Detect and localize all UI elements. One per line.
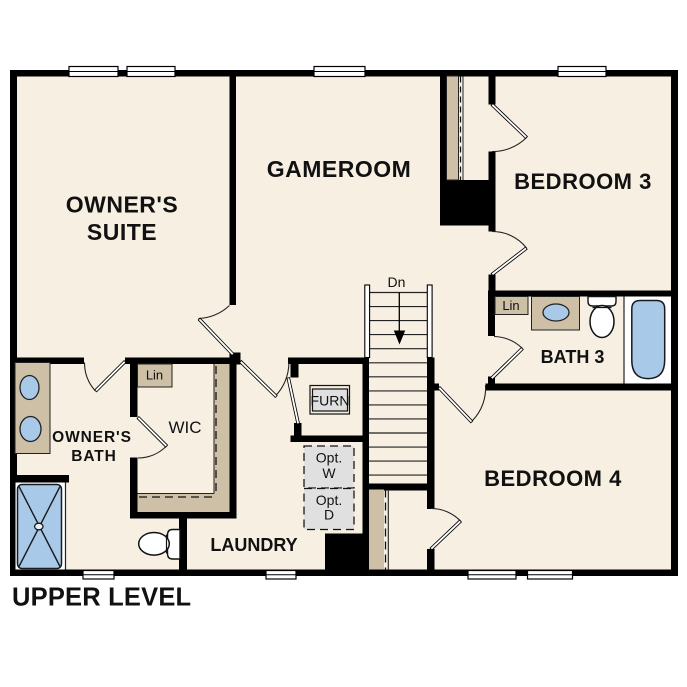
svg-text:GAMEROOM: GAMEROOM: [267, 156, 412, 182]
svg-text:UPPER LEVEL: UPPER LEVEL: [12, 584, 191, 612]
svg-text:OWNER'S: OWNER'S: [52, 429, 132, 446]
svg-text:BATH 3: BATH 3: [541, 347, 605, 367]
svg-text:BEDROOM 4: BEDROOM 4: [484, 466, 622, 491]
svg-text:Lin: Lin: [146, 368, 163, 383]
svg-text:D: D: [324, 507, 334, 523]
svg-text:BATH: BATH: [71, 448, 117, 465]
svg-text:SUITE: SUITE: [87, 219, 157, 245]
svg-text:FURN: FURN: [311, 393, 350, 409]
svg-text:OWNER'S: OWNER'S: [66, 192, 178, 218]
svg-text:Lin: Lin: [502, 298, 519, 313]
svg-text:WIC: WIC: [168, 418, 201, 437]
svg-text:Opt.: Opt.: [316, 450, 342, 466]
svg-text:BEDROOM 3: BEDROOM 3: [514, 169, 652, 194]
svg-text:LAUNDRY: LAUNDRY: [210, 535, 297, 555]
svg-text:W: W: [322, 465, 336, 481]
svg-text:Dn: Dn: [388, 274, 406, 290]
